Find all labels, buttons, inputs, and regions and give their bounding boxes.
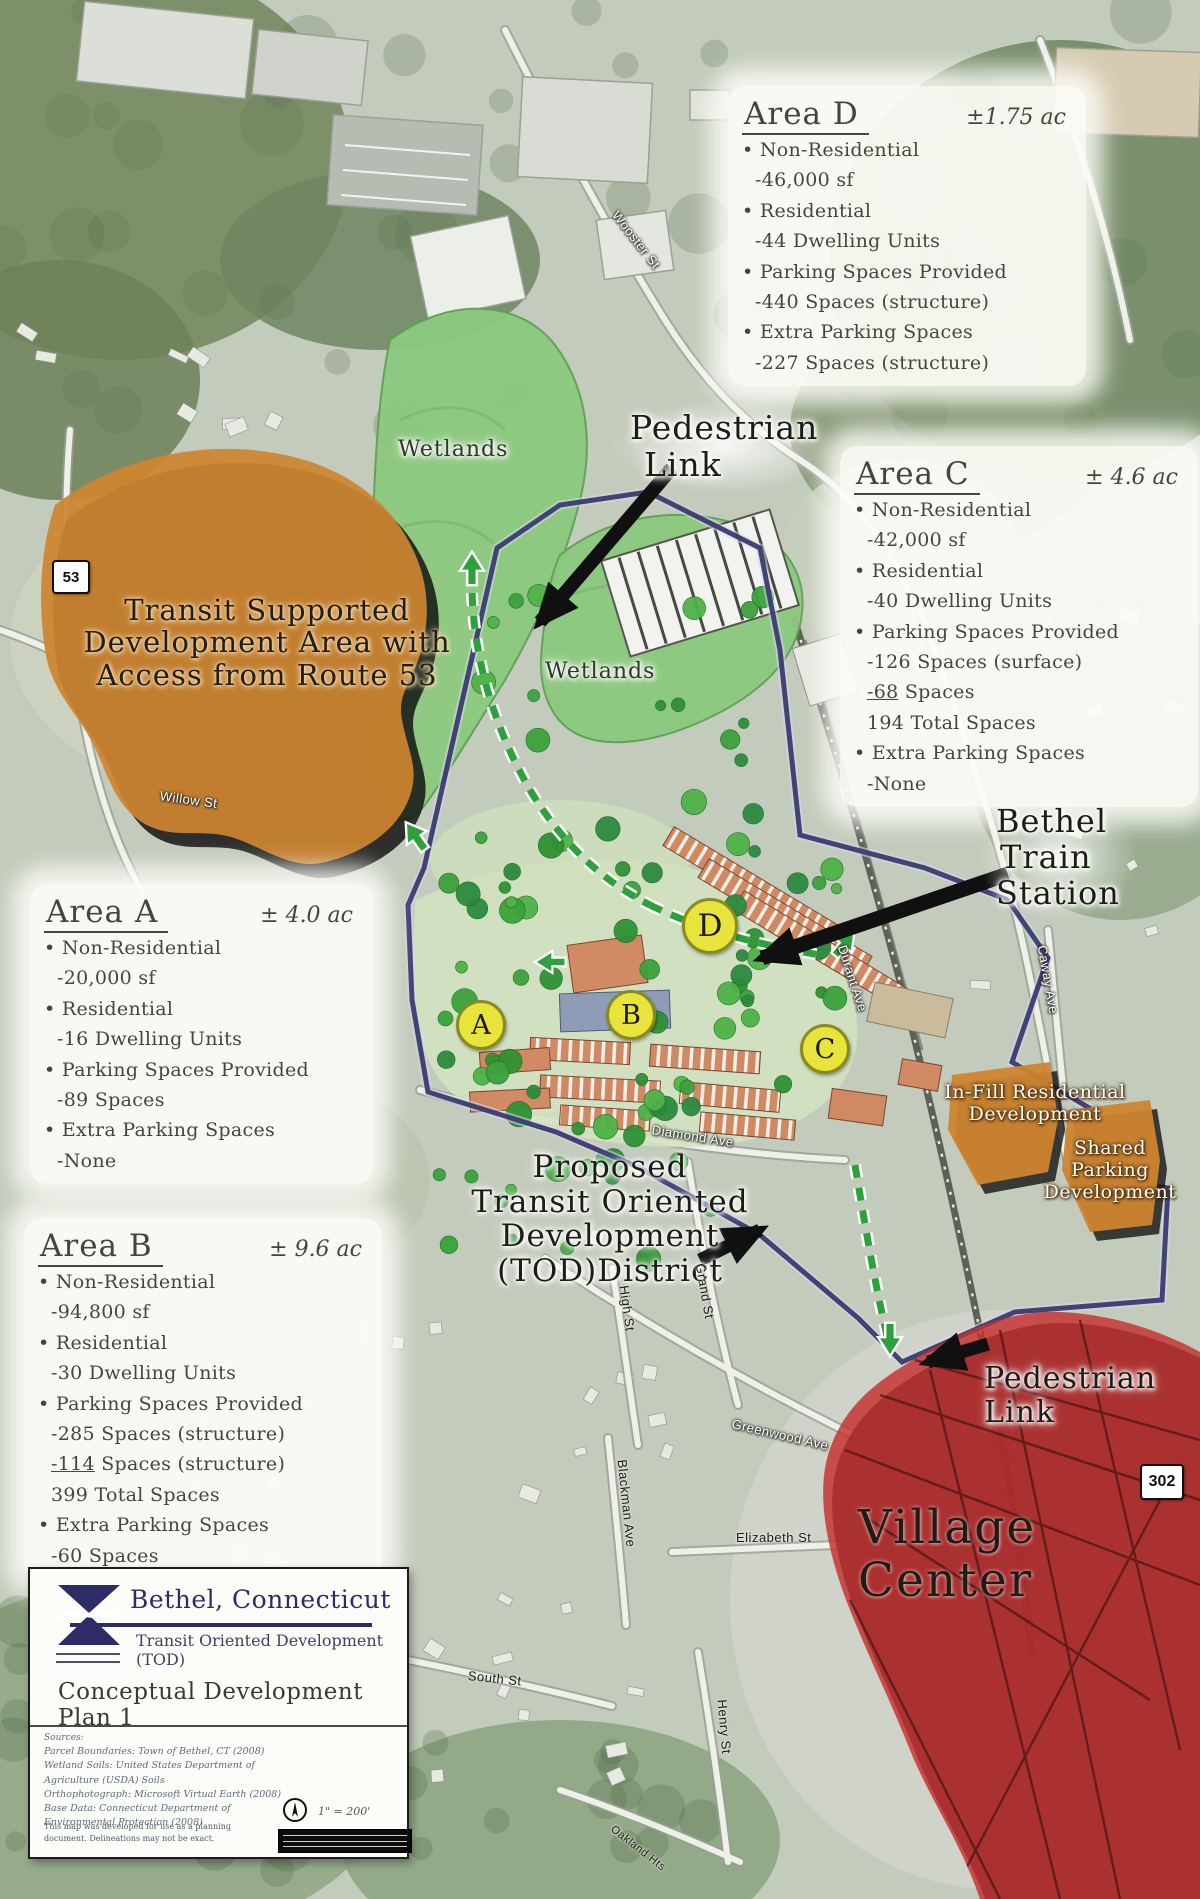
infill-line1: In-Fill Residential <box>905 1082 1165 1104</box>
legend-disclaimer: This map was developed for use as a plan… <box>44 1821 231 1844</box>
legend-sources: Parcel Boundaries: Town of Bethel, CT (2… <box>44 1745 281 1831</box>
area-a-item: Non-Residential <box>44 933 359 963</box>
legend-scale-text: 1" = 200' <box>318 1805 370 1818</box>
legend-sources-heading: Sources: <box>44 1733 84 1743</box>
area-b-item: Non-Residential <box>38 1267 368 1297</box>
area-d-item: Extra Parking Spaces <box>742 317 1072 347</box>
area-d-title: Area D <box>742 96 869 135</box>
pedestrian-link-bottom-line2: Link <box>984 1396 1156 1430</box>
area-d-item: -440 Spaces (structure) <box>742 287 1072 317</box>
area-a-item: Parking Spaces Provided <box>44 1055 359 1085</box>
area-c-header: Area C ± 4.6 ac <box>854 456 1184 495</box>
area-a-header: Area A ± 4.0 ac <box>44 894 359 933</box>
shared-parking-line2: Parking <box>1040 1160 1180 1182</box>
shared-parking-label: Shared Parking Development <box>1040 1138 1180 1204</box>
area-marker-b: B <box>606 990 656 1040</box>
legend-source-line: Parcel Boundaries: Town of Bethel, CT (2… <box>44 1745 281 1759</box>
transit-supported-line2: Development Area with <box>62 626 472 658</box>
transit-supported-label: Transit Supported Development Area with … <box>62 594 472 691</box>
area-b-title: Area B <box>38 1228 163 1267</box>
pedestrian-link-top-line1: Pedestrian <box>630 410 818 447</box>
area-c-stats-box: Area C ± 4.6 ac Non-Residential -42,000 … <box>840 446 1198 807</box>
area-c-item: Extra Parking Spaces <box>854 738 1184 768</box>
area-b-acreage: ± 9.6 ac <box>269 1237 368 1262</box>
area-d-acreage: ±1.75 ac <box>966 105 1072 130</box>
area-c-item: Residential <box>854 556 1184 586</box>
tod-district-line1: Proposed <box>415 1150 805 1185</box>
pedestrian-link-label-bottom: Pedestrian Link <box>984 1362 1156 1429</box>
tod-district-line2: Transit Oriented <box>415 1185 805 1220</box>
area-d-header: Area D ±1.75 ac <box>742 96 1072 135</box>
shared-parking-line1: Shared <box>1040 1138 1180 1160</box>
tod-district-line3: Development <box>415 1219 805 1254</box>
legend-divider <box>30 1725 407 1727</box>
route-53-shield: 53 <box>52 560 90 594</box>
infill-residential-label: In-Fill Residential Development <box>905 1082 1165 1126</box>
area-a-stats-box: Area A ± 4.0 ac Non-Residential -20,000 … <box>30 884 373 1184</box>
pedestrian-link-top-line2: Link <box>630 447 818 484</box>
area-a-item: -20,000 sf <box>44 963 359 993</box>
legend-disclaimer-line: This map was developed for use as a plan… <box>44 1821 231 1833</box>
legend-source-line: Wetland Soils: United States Department … <box>44 1759 281 1773</box>
tod-district-line4: (TOD)District <box>415 1254 805 1289</box>
area-c-item: Parking Spaces Provided <box>854 617 1184 647</box>
legend-plan-title: Conceptual Development Plan 1 <box>58 1679 407 1731</box>
logo-small-text-lines <box>56 1653 120 1669</box>
area-c-item-rest: Spaces <box>899 681 975 703</box>
area-a-item: -89 Spaces <box>44 1085 359 1115</box>
wetlands-label-lower: Wetlands <box>545 660 655 685</box>
area-d-stats-box: Area D ±1.75 ac Non-Residential -46,000 … <box>728 86 1086 386</box>
area-b-underlined-number: -114 <box>51 1453 95 1475</box>
area-b-item: -285 Spaces (structure) <box>38 1419 368 1449</box>
street-label-elizabeth: Elizabeth St <box>736 1530 811 1545</box>
area-b-item: Residential <box>38 1328 368 1358</box>
area-c-underlined-number: -68 <box>867 681 899 703</box>
legend-source-line: Agriculture (USDA) Soils <box>44 1774 281 1788</box>
area-c-item: -40 Dwelling Units <box>854 586 1184 616</box>
area-d-item: -44 Dwelling Units <box>742 226 1072 256</box>
area-c-item: -126 Spaces (surface) <box>854 647 1184 677</box>
tod-district-label: Proposed Transit Oriented Development (T… <box>415 1150 805 1289</box>
area-d-item: Non-Residential <box>742 135 1072 165</box>
village-center-label: Village Center <box>858 1502 1200 1607</box>
area-b-item: 399 Total Spaces <box>38 1480 368 1510</box>
area-a-acreage: ± 4.0 ac <box>260 903 359 928</box>
area-b-stats-box: Area B ± 9.6 ac Non-Residential -94,800 … <box>24 1218 382 1579</box>
pedestrian-link-label-top: Pedestrian Link <box>612 400 836 494</box>
legend-source-line: Orthophotograph: Microsoft Virtual Earth… <box>44 1788 281 1802</box>
area-d-item: -46,000 sf <box>742 165 1072 195</box>
area-d-item: -227 Spaces (structure) <box>742 348 1072 378</box>
area-c-title: Area C <box>854 456 980 495</box>
area-b-item: Parking Spaces Provided <box>38 1389 368 1419</box>
area-c-item: Non-Residential <box>854 495 1184 525</box>
area-marker-a: A <box>456 1000 506 1050</box>
transit-supported-line3: Access from Route 53 <box>62 659 472 691</box>
area-c-item: -68 Spaces <box>854 677 1184 707</box>
area-b-item: Extra Parking Spaces <box>38 1510 368 1540</box>
area-a-item: -16 Dwelling Units <box>44 1024 359 1054</box>
area-c-acreage: ± 4.6 ac <box>1085 465 1184 490</box>
conceptual-development-plan-map: Area D ±1.75 ac Non-Residential -46,000 … <box>0 0 1200 1899</box>
area-b-item: -94,800 sf <box>38 1297 368 1327</box>
area-a-item: Residential <box>44 994 359 1024</box>
transit-supported-line1: Transit Supported <box>62 594 472 626</box>
area-b-header: Area B ± 9.6 ac <box>38 1228 368 1267</box>
legend-subtitle: Transit Oriented Development (TOD) <box>136 1631 407 1669</box>
area-d-item: Parking Spaces Provided <box>742 257 1072 287</box>
area-b-item: -114 Spaces (structure) <box>38 1449 368 1479</box>
area-marker-c: C <box>800 1024 850 1074</box>
legend-title-rule <box>70 1623 372 1627</box>
area-b-item-rest: Spaces (structure) <box>95 1453 285 1475</box>
consultant-logo <box>56 1583 122 1647</box>
legend-title-block: Bethel, Connecticut Transit Oriented Dev… <box>28 1567 409 1859</box>
infill-line2: Development <box>905 1104 1165 1126</box>
train-station-label: Bethel Train Station <box>978 794 1138 921</box>
shared-parking-line3: Development <box>1040 1182 1180 1204</box>
area-a-item: -None <box>44 1146 359 1176</box>
wetlands-label-upper: Wetlands <box>398 438 508 463</box>
area-marker-d: D <box>682 898 738 954</box>
legend-town-title: Bethel, Connecticut <box>130 1585 391 1614</box>
train-station-line1: Bethel <box>996 804 1120 840</box>
area-b-item: -30 Dwelling Units <box>38 1358 368 1388</box>
area-c-item: -42,000 sf <box>854 525 1184 555</box>
area-d-item: Residential <box>742 196 1072 226</box>
pedestrian-link-bottom-line1: Pedestrian <box>984 1362 1156 1396</box>
area-c-item: 194 Total Spaces <box>854 708 1184 738</box>
north-arrow-icon <box>282 1797 308 1823</box>
area-a-title: Area A <box>44 894 168 933</box>
train-station-line3: Station <box>996 876 1120 912</box>
legend-disclaimer-line: document. Delineations may not be exact. <box>44 1833 231 1845</box>
area-a-item: Extra Parking Spaces <box>44 1115 359 1145</box>
legend-scale-bar <box>278 1829 412 1853</box>
legend-source-line: Base Data: Connecticut Department of <box>44 1802 281 1816</box>
route-302-shield: 302 <box>1140 1464 1184 1500</box>
train-station-line2: Train <box>996 840 1120 876</box>
